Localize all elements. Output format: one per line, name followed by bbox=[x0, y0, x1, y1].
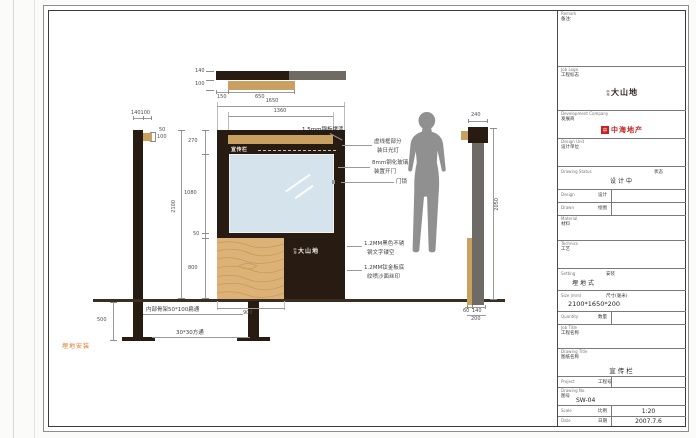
dim-tick bbox=[487, 119, 488, 123]
tb-quantity-row: Quantity 数量 bbox=[558, 312, 686, 325]
cell-divider bbox=[611, 190, 612, 202]
size-label-en: Size (mm) bbox=[561, 293, 581, 298]
drawing-status-label-cn: 状态 bbox=[654, 169, 663, 175]
dim-tick bbox=[110, 302, 117, 303]
annotation-steel-text-2: 钢文字镂空 bbox=[367, 250, 395, 256]
plan-view-glass-bar bbox=[289, 71, 346, 80]
plan-view-wood-bar bbox=[228, 81, 295, 90]
developer-logo-icon: 中 bbox=[601, 126, 609, 134]
tb-job-logo-section: Job Logo 工程标志 中海 大山地 bbox=[558, 67, 686, 111]
leader-line bbox=[347, 246, 362, 247]
dim-tick bbox=[155, 132, 156, 142]
quantity-label-cn: 数量 bbox=[598, 314, 607, 320]
leader-line bbox=[347, 270, 362, 271]
drawing-title-label-cn: 图纸名称 bbox=[561, 355, 686, 360]
panel-edge-line bbox=[13, 0, 14, 438]
dim-tick bbox=[206, 71, 214, 72]
dim-front-total: 2100 bbox=[172, 200, 177, 213]
side-view-wood-strip bbox=[467, 238, 472, 305]
dim-tick bbox=[490, 299, 497, 300]
date-label-en: Date bbox=[561, 418, 571, 423]
door-lock bbox=[332, 180, 335, 184]
developer-label-cn: 发展商 bbox=[561, 117, 686, 122]
developer-logo: 中 中海地产 bbox=[558, 125, 686, 135]
leader-line bbox=[341, 182, 394, 183]
dim-side-60: 60 bbox=[463, 309, 469, 314]
leader-line bbox=[342, 145, 372, 146]
date-label-cn: 日期 bbox=[598, 418, 607, 424]
dim-front-50: 50 bbox=[193, 232, 199, 237]
dim-side-140: 140 bbox=[472, 309, 482, 314]
sign-buried-post bbox=[248, 301, 259, 337]
dim-line bbox=[217, 106, 345, 107]
dim-front-270: 270 bbox=[188, 139, 198, 144]
dim-plan-140: 140 bbox=[195, 69, 205, 74]
dim-plan-100: 100 bbox=[195, 82, 205, 87]
drawing-sheet-view: 140 100 150 650 1650 1360 140100 50 100 … bbox=[0, 0, 696, 438]
title-block: Remark 备注: Job Logo 工程标志 中海 大山地 Developm… bbox=[557, 11, 686, 426]
project-logo: 中海 大山地 bbox=[558, 87, 686, 98]
design-label-cn: 设计 bbox=[598, 192, 607, 198]
quantity-label-en: Quantity bbox=[561, 314, 578, 319]
size-value: 2100*1650*200 bbox=[568, 300, 620, 308]
setting-label-cn: 安装 bbox=[606, 271, 615, 277]
project-label-cn: 工程号 bbox=[598, 379, 612, 385]
dim-tick bbox=[485, 305, 486, 309]
tb-developer-section: Development Company 发展商 中 中海地产 bbox=[558, 111, 686, 139]
dim-side-240: 240 bbox=[471, 113, 481, 118]
dim-tick bbox=[202, 130, 209, 131]
dim-tick bbox=[143, 116, 144, 120]
dim-tick bbox=[110, 340, 117, 341]
tb-drawing-no-section: Drawing No. 图号 SW-04 bbox=[558, 388, 686, 406]
annotation-steel-plate: 1.5mm钢板烤漆 bbox=[302, 127, 343, 133]
dim-front-1080: 1080 bbox=[184, 191, 197, 196]
dim-line bbox=[205, 130, 206, 299]
dim-pole-100: 100 bbox=[157, 135, 167, 140]
sign-post-foot bbox=[237, 337, 270, 341]
annotation-glass-2: 装置开门 bbox=[374, 169, 396, 175]
panel-edge-line bbox=[34, 0, 35, 438]
dim-line bbox=[181, 130, 182, 299]
tb-remark-section: Remark 备注: bbox=[558, 11, 686, 67]
project-label-en: Project bbox=[561, 379, 575, 384]
drawing-status-label-en: Drawing Status bbox=[561, 169, 592, 174]
sign-title-label: 宣传栏 bbox=[231, 146, 248, 153]
size-label-cn: 尺寸(毫米) bbox=[606, 293, 628, 299]
dim-front-800: 800 bbox=[188, 266, 198, 271]
dim-depth-500: 500 bbox=[97, 318, 107, 323]
scale-label-en: Scale bbox=[561, 408, 572, 413]
side-view-post bbox=[472, 143, 484, 305]
drawing-status-value: 设计中 bbox=[558, 176, 686, 185]
project-logo-prefix: 中海 bbox=[606, 90, 610, 96]
dim-tick bbox=[202, 238, 209, 239]
leader-line bbox=[152, 337, 250, 338]
scale-value: 1:20 bbox=[611, 408, 686, 415]
dim-tick bbox=[133, 116, 134, 120]
side-view-cap bbox=[468, 127, 488, 143]
glass-panel bbox=[229, 154, 334, 233]
dim-tick bbox=[151, 116, 152, 120]
tb-technics-section: Technics 工艺 bbox=[558, 241, 686, 269]
drawn-label-en: Drawn bbox=[561, 205, 574, 210]
tb-job-title-section: Job Title 工程名称 bbox=[558, 325, 686, 349]
cell-divider bbox=[611, 203, 612, 215]
dashed-light-box-line bbox=[258, 150, 336, 151]
tb-material-section: Material 材料 bbox=[558, 216, 686, 241]
dim-line bbox=[113, 302, 114, 341]
tb-scale-row: Scale 比例 1:20 bbox=[558, 406, 686, 417]
scale-label-cn: 比例 bbox=[598, 408, 607, 414]
dim-side-2050: 2050 bbox=[495, 198, 500, 211]
dim-line bbox=[228, 116, 333, 117]
tb-size-section: Size (mm) 尺寸(毫米) 2100*1650*200 bbox=[558, 291, 686, 312]
developer-logo-text: 中海地产 bbox=[611, 125, 643, 135]
left-pole-foot bbox=[122, 337, 155, 341]
dim-tick bbox=[490, 128, 497, 129]
date-value: 2007.7.6 bbox=[611, 418, 686, 425]
tb-setting-section: Setting 安装 埋地式 bbox=[558, 269, 686, 291]
tb-design-unit-section: Design Unit 设计单位 bbox=[558, 139, 686, 167]
drawing-title-value: 宣传栏 bbox=[558, 365, 686, 375]
design-unit-label-cn: 设计单位 bbox=[561, 145, 686, 150]
sign-top-steel-strip bbox=[228, 135, 333, 144]
dim-tick bbox=[206, 90, 214, 91]
dim-front-1650: 1650 bbox=[258, 99, 286, 104]
dim-side-200: 200 bbox=[471, 317, 481, 322]
dim-tick bbox=[294, 90, 295, 94]
wood-panel bbox=[217, 238, 284, 299]
drawn-label-cn: 绘图 bbox=[598, 205, 607, 211]
setting-value: 埋地式 bbox=[572, 278, 596, 287]
plan-view-dark-bar bbox=[216, 71, 289, 80]
dim-pole-50: 50 bbox=[159, 128, 165, 133]
leader-line bbox=[143, 314, 243, 315]
tb-drawing-status-section: Drawing Status 状态 设计中 bbox=[558, 167, 686, 190]
human-figure-silhouette bbox=[394, 110, 454, 302]
annotation-install: 埋地安装 bbox=[62, 344, 90, 351]
job-title-label-cn: 工程名称 bbox=[561, 331, 686, 336]
dim-plan-150: 150 bbox=[217, 95, 227, 100]
remark-label-cn: 备注: bbox=[561, 17, 686, 22]
dim-tick bbox=[228, 90, 229, 94]
sign-logo: 中海 大山地 bbox=[293, 246, 319, 255]
dim-line bbox=[217, 308, 285, 309]
dim-wood-900: 900 bbox=[243, 311, 253, 316]
setting-label-en: Setting bbox=[561, 271, 575, 276]
dim-tick bbox=[202, 233, 209, 234]
tb-drawn-row: Drawn 绘图 bbox=[558, 203, 686, 216]
cell-divider bbox=[611, 312, 612, 324]
dim-tick bbox=[202, 154, 209, 155]
project-logo-text: 大山地 bbox=[611, 87, 638, 98]
sign-logo-prefix: 中海 bbox=[293, 248, 297, 254]
drawing-no-value: SW-04 bbox=[576, 397, 595, 404]
job-logo-label-cn: 工程标志 bbox=[561, 73, 686, 78]
dim-front-1360: 1360 bbox=[266, 109, 294, 114]
dim-tick bbox=[206, 80, 214, 81]
dim-tick bbox=[468, 119, 469, 123]
sign-logo-text: 大山地 bbox=[298, 246, 319, 255]
tb-date-row: Date 日期 2007.7.6 bbox=[558, 417, 686, 426]
dim-tick bbox=[178, 130, 185, 131]
extension-line bbox=[228, 112, 229, 130]
side-view-cap-wood bbox=[461, 131, 468, 140]
dim-line bbox=[493, 128, 494, 300]
dim-line bbox=[468, 121, 488, 122]
tb-drawing-title-section: Drawing Title 图纸名称 宣传栏 bbox=[558, 349, 686, 377]
leader-line bbox=[338, 167, 370, 168]
technics-label-cn: 工艺 bbox=[561, 247, 686, 252]
left-pole-wood-block bbox=[143, 133, 152, 141]
design-label-en: Design bbox=[561, 192, 575, 197]
cell-divider bbox=[611, 377, 612, 387]
tb-project-row: Project 工程号 bbox=[558, 377, 686, 388]
left-pole bbox=[133, 130, 143, 337]
annotation-square-tube: 30*30方通 bbox=[176, 330, 204, 336]
annotation-frame-tube: 内部骨架50*100扁通 bbox=[146, 307, 199, 313]
material-label-cn: 材料 bbox=[561, 222, 686, 227]
tb-design-row: Design 设计 bbox=[558, 190, 686, 203]
